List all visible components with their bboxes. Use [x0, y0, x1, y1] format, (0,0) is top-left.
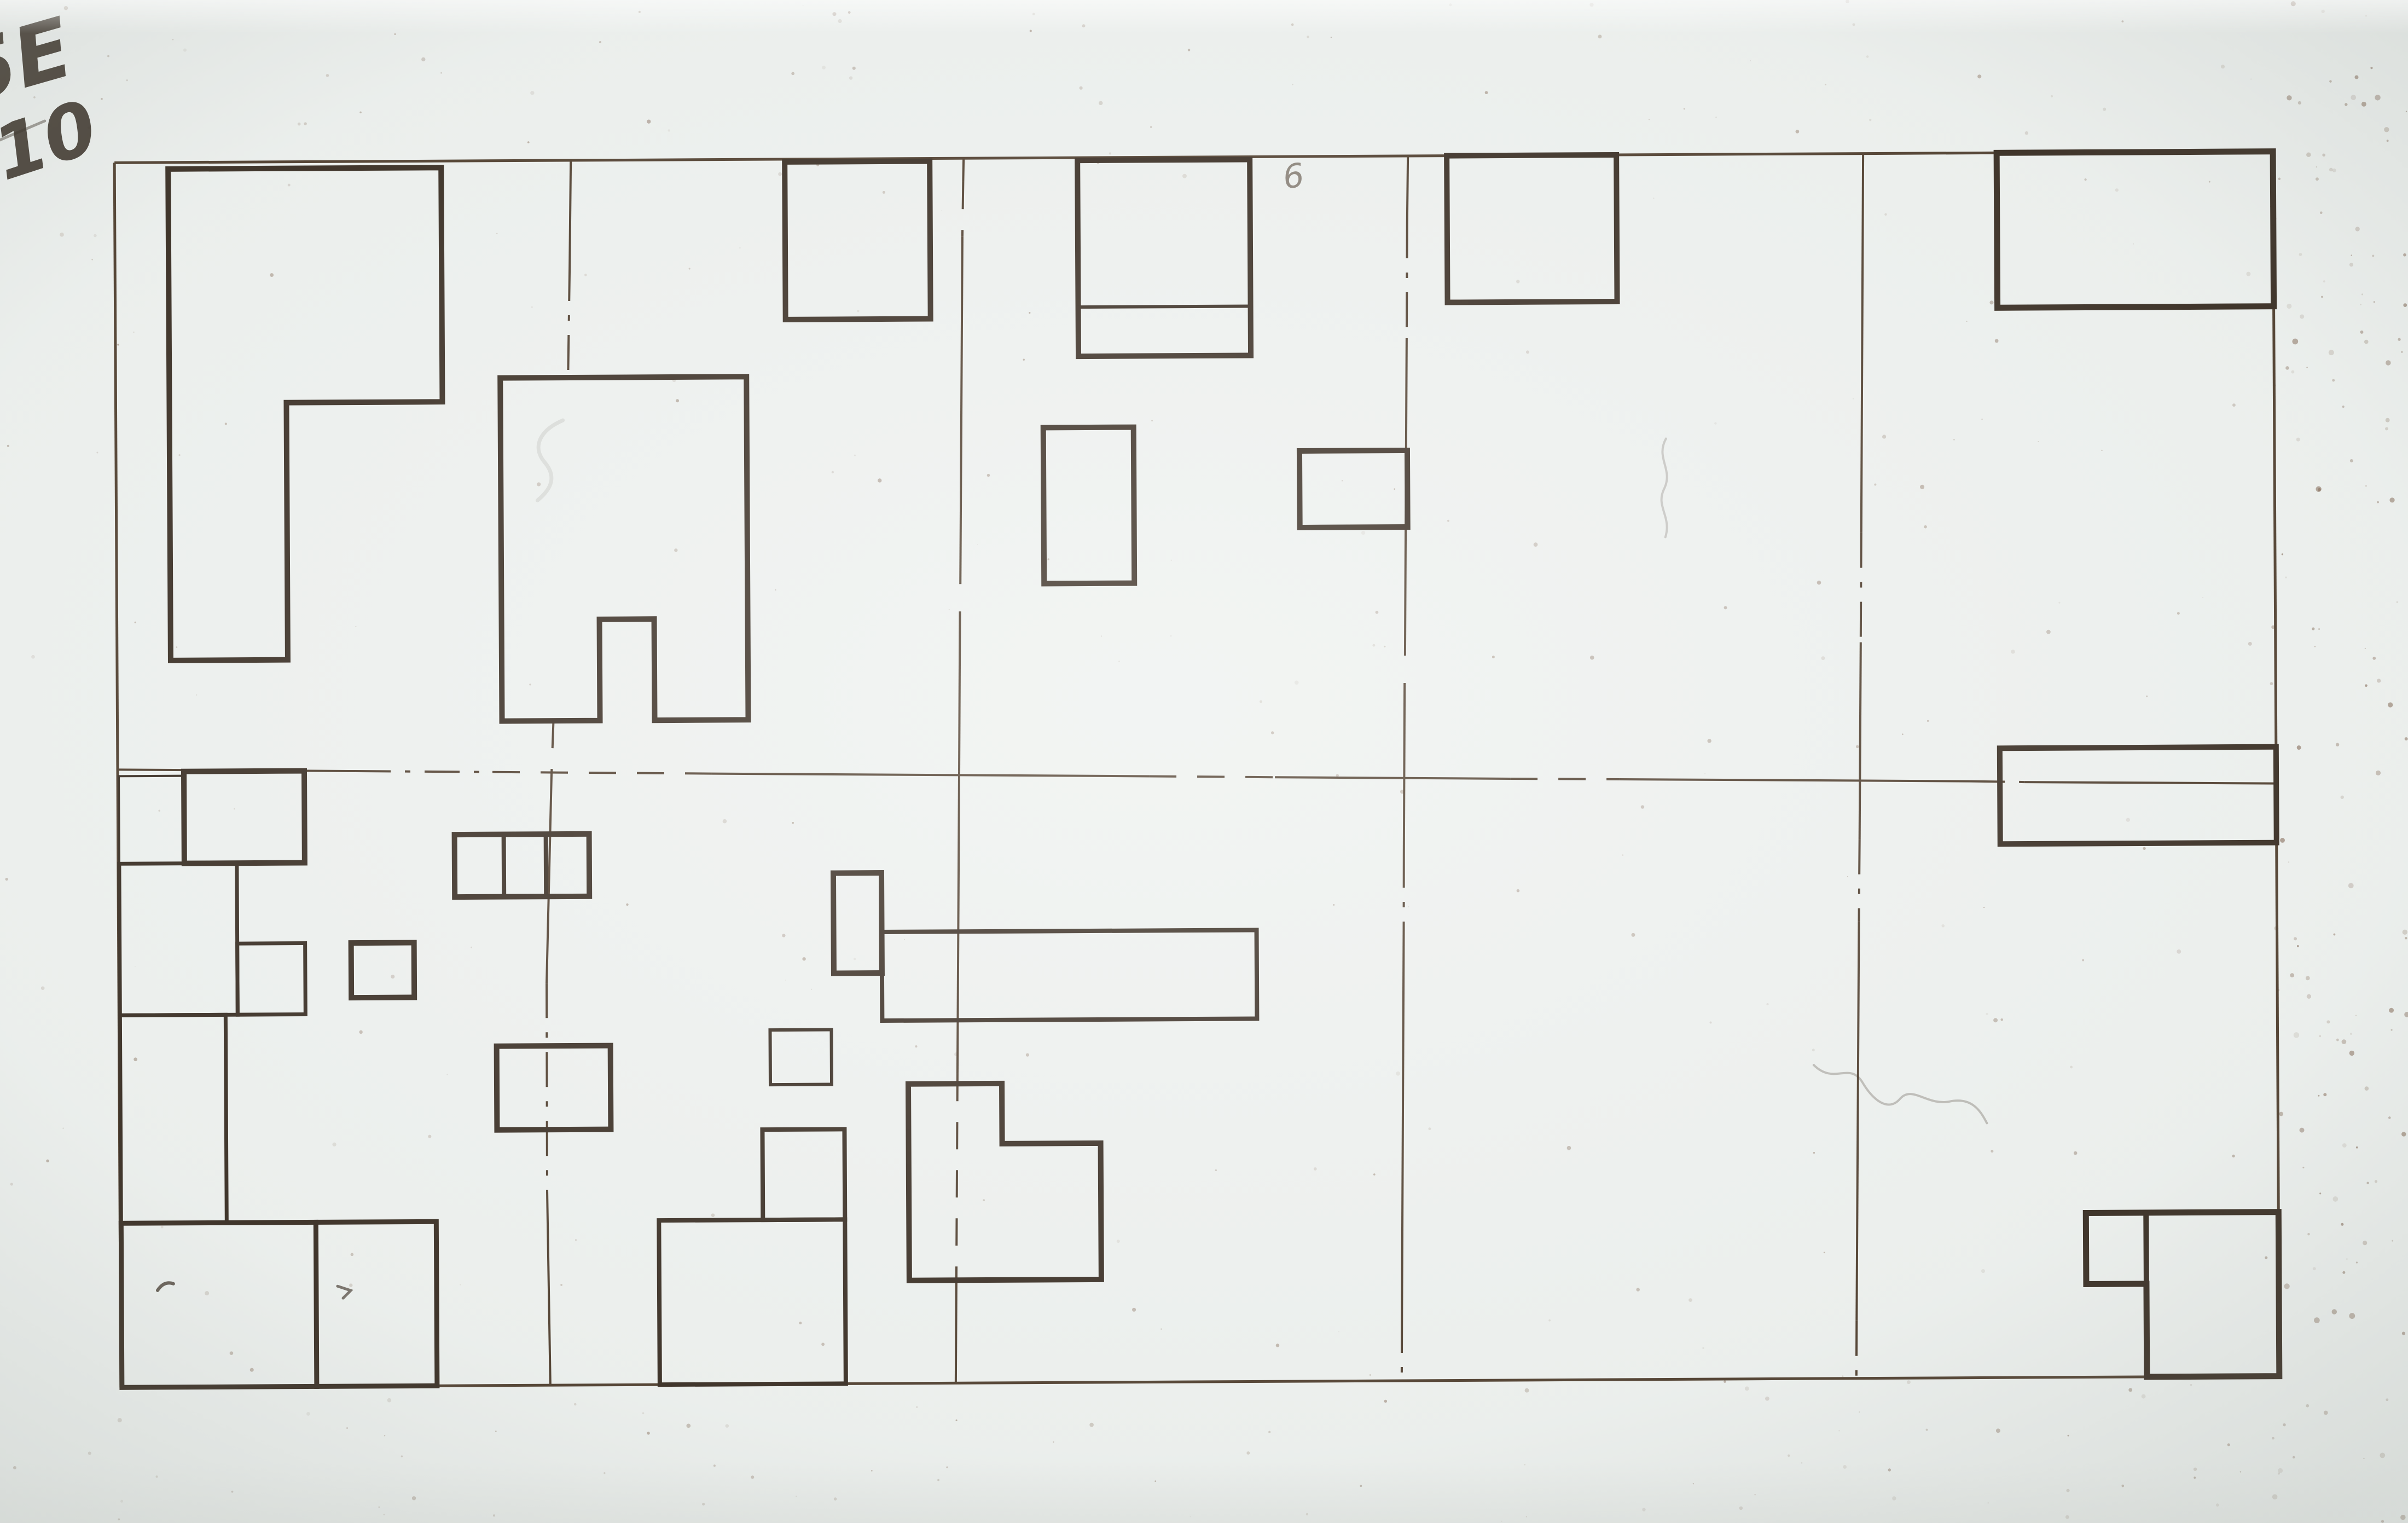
- paper-speck-417: [1268, 1431, 1270, 1433]
- paper-speck-259: [2403, 930, 2407, 935]
- paper-speck-356: [2392, 1240, 2393, 1242]
- paper-speck-354: [2299, 253, 2302, 256]
- paper-speck-339: [2270, 682, 2273, 685]
- paper-speck-209: [2128, 1388, 2132, 1392]
- paper-speck-352: [2348, 883, 2354, 888]
- paper-speck-52: [739, 247, 741, 249]
- section-divider-2-seg0: [963, 158, 964, 182]
- building-west-upper-annex: [237, 943, 306, 1015]
- paper-speck-357: [2375, 1180, 2377, 1183]
- paper-speck-87: [2082, 959, 2084, 962]
- building-small-col3-right: [1299, 450, 1408, 528]
- paper-speck-13: [60, 233, 64, 237]
- stray-pen-mark: 6: [1280, 156, 1307, 197]
- paper-speck-72: [1590, 656, 1594, 660]
- section-divider-1-seg0: [569, 160, 571, 266]
- paper-speck-112: [1372, 644, 1375, 647]
- paper-speck-318: [2306, 153, 2311, 157]
- paper-speck-271: [2365, 648, 2366, 649]
- paper-speck-249: [2398, 338, 2400, 341]
- building-se-l-shape: [2086, 1212, 2279, 1377]
- paper-speck-33: [1260, 700, 1262, 703]
- paper-speck-159: [1995, 339, 1999, 343]
- paper-speck-18: [172, 39, 174, 40]
- paper-speck-224: [384, 1435, 385, 1436]
- paper-speck-362: [2385, 427, 2388, 431]
- paper-speck-40: [1853, 398, 1854, 399]
- paper-speck-448: [599, 41, 601, 43]
- scratch-col4-wavy: [1661, 438, 1667, 537]
- paper-speck-97: [2133, 244, 2134, 245]
- paper-speck-106: [2313, 1267, 2316, 1270]
- paper-speck-430: [1291, 24, 1294, 26]
- paper-speck-140: [1884, 213, 1887, 216]
- paper-speck-238: [1989, 300, 1993, 304]
- paper-speck-172: [626, 904, 628, 906]
- paper-speck-436: [2051, 95, 2053, 97]
- paper-speck-273: [2345, 103, 2347, 106]
- paper-speck-60: [225, 422, 227, 425]
- paper-speck-368: [2307, 994, 2311, 999]
- paper-speck-340: [2280, 838, 2285, 843]
- paper-speck-402: [647, 1432, 649, 1434]
- paper-speck-101: [1882, 435, 1886, 438]
- paper-speck-155: [1117, 1240, 1120, 1243]
- paper-speck-241: [2288, 861, 2290, 863]
- paper-speck-215: [1023, 358, 1025, 360]
- paper-speck-303: [2402, 1331, 2405, 1335]
- paper-speck-247: [2351, 254, 2352, 256]
- paper-speck-59: [428, 1135, 431, 1138]
- paper-speck-110: [2397, 601, 2398, 603]
- half-section-line-seg3: [711, 771, 1149, 778]
- paper-speck-299: [2291, 1, 2296, 6]
- paper-speck-469: [1846, 0, 1849, 3]
- paper-speck-217: [96, 452, 98, 454]
- paper-speck-166: [1182, 174, 1187, 178]
- paper-speck-228: [356, 626, 357, 627]
- paper-speck-240: [2278, 1468, 2283, 1473]
- paper-speck-2: [117, 344, 119, 345]
- paper-speck-423: [2216, 1503, 2219, 1507]
- paper-speck-143: [359, 1030, 362, 1034]
- paper-speck-348: [2336, 1039, 2339, 1041]
- paper-speck-367: [2322, 153, 2325, 157]
- paper-speck-11: [2011, 650, 2015, 653]
- paper-speck-255: [2332, 169, 2336, 172]
- paper-speck-58: [107, 55, 109, 57]
- paper-speck-193: [2306, 1404, 2309, 1408]
- paper-speck-31: [1295, 680, 1299, 685]
- paper-speck-420: [118, 1418, 122, 1422]
- paper-speck-66: [471, 947, 472, 948]
- paper-speck-416: [2068, 1435, 2069, 1437]
- paper-speck-21: [1821, 656, 1825, 660]
- paper-speck-451: [1684, 108, 1685, 109]
- section-divider-2-seg3: [958, 611, 961, 772]
- paper-speck-342: [2336, 743, 2339, 746]
- paper-speck-350: [2351, 95, 2356, 100]
- paper-speck-75: [2232, 403, 2236, 407]
- paper-speck-198: [31, 655, 35, 659]
- paper-speck-158: [41, 986, 45, 990]
- paper-speck-99: [1132, 1308, 1136, 1312]
- paper-speck-121: [1813, 1152, 1815, 1154]
- paper-speck-225: [178, 454, 180, 456]
- paper-speck-152: [2177, 612, 2180, 615]
- building-three-cell: [455, 834, 590, 897]
- paper-speck-429: [1292, 84, 1293, 85]
- paper-speck-344: [2354, 75, 2358, 79]
- paper-speck-421: [2065, 1515, 2069, 1519]
- paper-speck-28: [1548, 1319, 1551, 1322]
- paper-speck-83: [135, 622, 136, 623]
- paper-speck-27: [2000, 1018, 2003, 1021]
- paper-speck-385: [2121, 1485, 2124, 1487]
- paper-speck-376: [1859, 1411, 1860, 1412]
- paper-speck-231: [234, 808, 235, 809]
- paper-speck-380: [1693, 1483, 1694, 1484]
- paper-speck-409: [1801, 1462, 1803, 1464]
- scratch-col5-hair: [1814, 1064, 1987, 1124]
- paper-speck-453: [1032, 13, 1035, 15]
- paper-speck-267: [2356, 1261, 2358, 1263]
- half-section-line-seg5: [1275, 776, 1510, 780]
- paper-speck-128: [91, 259, 92, 260]
- paper-speck-36: [1702, 1347, 1704, 1349]
- paper-speck-414: [834, 1497, 837, 1501]
- paper-speck-63: [2341, 796, 2344, 799]
- paper-speck-120: [2248, 642, 2252, 646]
- paper-speck-9: [5, 878, 8, 881]
- paper-speck-35: [1526, 350, 1529, 354]
- paper-speck-210: [1333, 904, 1334, 906]
- paper-speck-284: [2404, 1012, 2408, 1017]
- paper-speck-61: [391, 975, 394, 978]
- half-section-line-seg7: [1620, 778, 1970, 783]
- paper-speck-117: [1118, 661, 1120, 662]
- paper-speck-160: [676, 399, 679, 402]
- paper-speck-275: [2333, 934, 2335, 936]
- paper-speck-118: [854, 455, 856, 456]
- paper-speck-349: [2366, 1182, 2369, 1184]
- paper-speck-406: [88, 1452, 91, 1455]
- paper-speck-441: [852, 67, 856, 70]
- paper-speck-24: [792, 822, 794, 824]
- drawing-ink-layer: [0, 109, 2279, 1388]
- paper-speck-46: [2202, 597, 2203, 598]
- paper-speck-415: [1788, 1455, 1790, 1457]
- paper-speck-94: [1394, 488, 1395, 490]
- paper-speck-211: [2265, 1256, 2267, 1259]
- paper-speck-176: [2323, 280, 2325, 282]
- paper-speck-294: [2349, 1313, 2355, 1319]
- paper-speck-307: [2272, 1437, 2274, 1440]
- section-divider-2-seg5: [955, 1074, 959, 1282]
- paper-speck-65: [158, 810, 160, 812]
- paper-speck-153: [1428, 1127, 1431, 1130]
- section-divider-4-seg2: [1859, 642, 1862, 839]
- paper-speck-450: [639, 11, 641, 13]
- paper-speck-195: [1953, 439, 1954, 440]
- building-small-col3: [1043, 427, 1134, 584]
- paper-speck-300: [2386, 418, 2390, 422]
- paper-speck-70: [1766, 1003, 1768, 1005]
- paper-speck-337: [2403, 303, 2407, 307]
- paper-speck-151: [983, 1199, 985, 1201]
- paper-speck-89: [1847, 876, 1848, 877]
- paper-speck-370: [493, 1514, 495, 1516]
- paper-speck-256: [2321, 296, 2323, 298]
- paper-speck-462: [326, 74, 329, 77]
- paper-speck-174: [2194, 1476, 2196, 1479]
- paper-speck-196: [689, 268, 691, 269]
- paper-speck-270: [2376, 771, 2381, 775]
- section-divider-2-seg2: [959, 236, 964, 584]
- paper-speck-147: [1151, 420, 1153, 421]
- paper-speck-364: [2381, 1520, 2384, 1523]
- paper-speck-434: [359, 112, 362, 114]
- paper-speck-64: [1396, 1072, 1400, 1076]
- paper-speck-93: [306, 1412, 310, 1416]
- paper-speck-468: [668, 129, 670, 131]
- paper-speck-316: [2306, 976, 2310, 981]
- paper-speck-7: [811, 989, 812, 990]
- paper-speck-84: [1842, 1375, 1843, 1377]
- paper-speck-333: [2314, 1317, 2320, 1323]
- paper-speck-192: [711, 1213, 715, 1217]
- paper-speck-381: [702, 1503, 705, 1505]
- paper-speck-312: [2314, 646, 2316, 647]
- paper-speck-111: [1920, 485, 1924, 489]
- paper-speck-455: [1449, 3, 1452, 6]
- paper-speck-137: [785, 980, 786, 981]
- section-divider-2-seg6: [955, 1282, 957, 1383]
- paper-speck-167: [304, 122, 306, 125]
- paper-speck-386: [946, 1466, 948, 1468]
- paper-speck-458: [530, 91, 534, 95]
- paper-speck-467: [1082, 24, 1086, 27]
- paper-speck-226: [791, 72, 794, 75]
- paper-speck-126: [1307, 36, 1309, 38]
- paper-speck-39: [584, 274, 587, 276]
- paper-speck-387: [1996, 1428, 2000, 1433]
- paper-speck-34: [527, 141, 530, 143]
- paper-speck-427: [1825, 84, 1826, 85]
- paper-speck-96: [1525, 1388, 1529, 1393]
- paper-speck-222: [1171, 560, 1172, 561]
- paper-speck-20: [854, 958, 856, 960]
- paper-speck-136: [2387, 140, 2389, 142]
- paper-speck-38: [1838, 1430, 1840, 1432]
- paper-speck-389: [2240, 1471, 2242, 1473]
- paper-speck-283: [2403, 253, 2406, 257]
- section-divider-3-seg0: [1407, 156, 1408, 223]
- paper-speck-19: [1306, 1513, 1308, 1515]
- paper-speck-205: [2329, 168, 2333, 172]
- paper-speck-122: [1991, 1150, 1993, 1153]
- paper-speck-459: [1715, 117, 1716, 118]
- building-west-upper: [119, 863, 237, 1015]
- paper-speck-401: [412, 1496, 416, 1500]
- paper-speck-321: [2316, 177, 2319, 181]
- paper-speck-190: [1824, 1252, 1825, 1253]
- paper-speck-49: [949, 609, 950, 610]
- paper-speck-403: [1739, 1507, 1743, 1510]
- paper-speck-272: [2389, 497, 2394, 502]
- paper-speck-104: [2084, 178, 2086, 181]
- paper-speck-254: [2365, 1086, 2369, 1091]
- paper-speck-347: [2297, 745, 2301, 750]
- border-frame-seg2: [121, 1376, 2279, 1388]
- paper-speck-246: [2405, 937, 2407, 940]
- paper-speck-129: [1817, 581, 1821, 585]
- paper-speck-10: [1688, 1298, 1692, 1302]
- paper-speck-292: [2390, 1029, 2392, 1030]
- watermark-s-curve: [537, 420, 564, 500]
- paper-speck-449: [1331, 37, 1332, 38]
- paper-speck-280: [2300, 314, 2304, 319]
- paper-speck-411: [1765, 1397, 1769, 1401]
- paper-speck-443: [64, 6, 68, 10]
- paper-speck-191: [134, 1057, 137, 1061]
- paper-speck-180: [1373, 1173, 1376, 1175]
- paper-speck-296: [2294, 1032, 2299, 1038]
- paper-speck-164: [2388, 1116, 2391, 1119]
- paper-speck-447: [1080, 86, 1083, 90]
- paper-speck-244: [2350, 459, 2353, 462]
- paper-speck-279: [2341, 1223, 2343, 1226]
- paper-speck-80: [2058, 602, 2060, 604]
- half-section-line-seg9: [2024, 781, 2276, 785]
- paper-speck-218: [942, 210, 943, 211]
- paper-speck-375: [155, 1475, 158, 1478]
- paper-speck-465: [440, 72, 442, 73]
- paper-speck-141: [351, 1253, 354, 1256]
- paper-speck-445: [2221, 65, 2225, 68]
- section-divider-2-seg1: [962, 182, 964, 236]
- paper-speck-291: [2370, 67, 2372, 69]
- paper-speck-150: [10, 1183, 13, 1185]
- paper-speck-397: [1642, 1508, 1645, 1511]
- paper-speck-278: [2307, 1233, 2310, 1235]
- paper-speck-308: [2285, 577, 2287, 578]
- paper-speck-202: [2232, 1155, 2235, 1157]
- section-divider-4-seg5: [1856, 1321, 1857, 1379]
- paper-speck-398: [384, 1514, 385, 1515]
- paper-speck-322: [2360, 331, 2364, 334]
- paper-speck-98: [775, 589, 776, 590]
- paper-speck-25: [1983, 907, 1985, 908]
- paper-speck-358: [2342, 1039, 2347, 1044]
- paper-speck-50: [1631, 933, 1635, 937]
- plat-drawing: 5E 10 6: [0, 0, 2408, 1523]
- paper-speck-169: [2142, 1394, 2146, 1399]
- paper-speck-298: [2323, 1093, 2326, 1096]
- paper-speck-335: [2389, 1008, 2394, 1013]
- paper-speck-91: [231, 1491, 234, 1493]
- paper-speck-324: [2372, 254, 2374, 257]
- paper-speck-457: [832, 12, 836, 16]
- paper-speck-8: [1215, 1169, 1217, 1171]
- paper-speck-269: [2318, 1095, 2319, 1097]
- paper-speck-464: [101, 98, 103, 100]
- paper-speck-306: [2306, 367, 2307, 368]
- paper-speck-425: [838, 19, 842, 23]
- paper-speck-440: [1853, 23, 1855, 26]
- paper-speck-422: [2066, 1489, 2069, 1492]
- wall-three-cell-b: [546, 834, 547, 896]
- paper-speck-69: [1977, 74, 1981, 78]
- paper-speck-105: [2102, 450, 2103, 451]
- paper-speck-289: [2365, 684, 2368, 687]
- paper-speck-156: [883, 191, 885, 194]
- paper-speck-424: [495, 1431, 497, 1432]
- paper-speck-276: [2285, 366, 2289, 370]
- paper-speck-237: [1370, 1374, 1371, 1376]
- paper-speck-379: [1246, 1451, 1250, 1455]
- paper-speck-186: [977, 544, 978, 545]
- paper-speck-320: [2386, 1398, 2388, 1401]
- paper-speck-404: [2194, 1468, 2197, 1471]
- paper-speck-466: [2025, 131, 2028, 135]
- paper-speck-250: [2401, 1132, 2406, 1136]
- paper-speck-390: [751, 1475, 754, 1479]
- paper-speck-12: [2038, 441, 2039, 442]
- paper-speck-372: [2363, 1458, 2364, 1459]
- paper-speck-323: [2364, 340, 2369, 344]
- paper-speck-23: [1170, 635, 1172, 636]
- paper-speck-405: [1089, 1423, 1094, 1427]
- section-divider-4-seg0: [1859, 154, 1865, 533]
- paper-speck-327: [2332, 1196, 2338, 1202]
- paper-speck-142: [2126, 818, 2130, 822]
- paper-speck-252: [2282, 553, 2283, 555]
- section-divider-1-seg4: [546, 983, 548, 1191]
- paper-speck-47: [2143, 847, 2145, 850]
- building-west-tall: [120, 1015, 227, 1223]
- section-divider-3-seg3: [1403, 683, 1406, 853]
- paper-speck-359: [2293, 1456, 2295, 1458]
- paper-speck-432: [2365, 15, 2366, 16]
- paper-speck-86: [604, 1472, 605, 1474]
- paper-speck-329: [2294, 937, 2297, 940]
- paper-speck-243: [2377, 679, 2381, 682]
- building-center-sw: [497, 1046, 611, 1130]
- paper-speck-123: [1276, 1344, 1279, 1347]
- paper-speck-71: [2177, 949, 2181, 954]
- section-divider-1-seg5: [547, 1191, 550, 1385]
- paper-speck-204: [1888, 1468, 1891, 1471]
- paper-speck-345: [2342, 1271, 2345, 1274]
- paper-speck-168: [560, 1284, 562, 1286]
- paper-speck-148: [196, 694, 197, 696]
- section-divider-4-seg1: [1860, 533, 1862, 642]
- paper-speck-131: [2074, 1151, 2078, 1155]
- paper-speck-314: [2400, 1515, 2406, 1520]
- building-bottom-c2-annex: [762, 1129, 845, 1220]
- half-section-line-seg6: [1510, 778, 1620, 780]
- paper-speck-127: [1636, 1288, 1640, 1292]
- paper-speck-413: [1526, 1516, 1527, 1518]
- paper-speck-330: [2365, 485, 2367, 487]
- paper-speck-92: [1447, 520, 1449, 522]
- paper-speck-282: [2361, 102, 2366, 107]
- paper-speck-201: [62, 1127, 63, 1128]
- scanned-plat-sheet: 5E 10 6: [0, 0, 2408, 1523]
- paper-speck-56: [915, 1045, 917, 1047]
- paper-speck-338: [2321, 10, 2324, 13]
